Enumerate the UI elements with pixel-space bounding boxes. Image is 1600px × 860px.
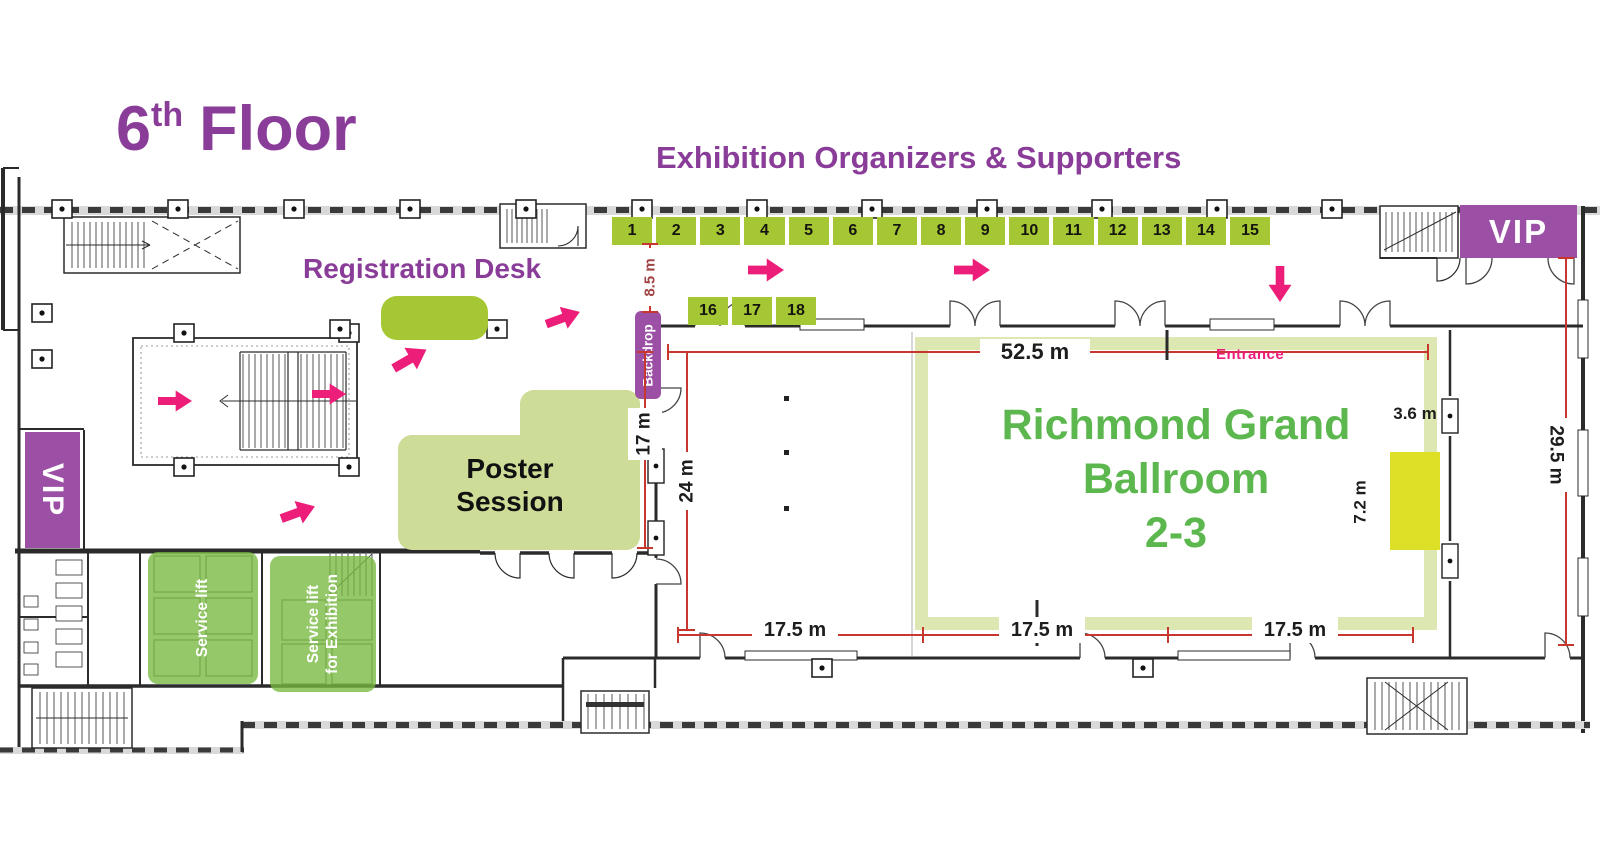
booth-8: 8 <box>921 217 961 245</box>
booth-row-top: 1 2 3 4 5 6 7 8 9 10 11 12 13 14 15 <box>612 217 1270 245</box>
stairs-bottom-right <box>1367 678 1467 734</box>
flow-arrow-up-right-icon <box>542 301 584 336</box>
floor-word: Floor <box>199 94 356 164</box>
dim-ballroom-length: 52.5 m <box>980 339 1090 365</box>
vip-right-doors <box>1466 258 1574 284</box>
dim-bay-2: 17.5 m <box>999 617 1085 643</box>
vip-right-zone: VIP <box>1460 205 1577 258</box>
flow-arrow-right-icon <box>748 258 784 282</box>
booth-16: 16 <box>688 297 728 325</box>
booth-1: 1 <box>612 217 652 245</box>
booth-14: 14 <box>1186 217 1226 245</box>
ballroom-label: Richmond Grand Ballroom 2-3 <box>929 398 1423 560</box>
service-lift-zone: Service lift <box>148 552 258 684</box>
backdrop-zone: Backdrop <box>635 311 661 399</box>
booth-17: 17 <box>732 297 772 325</box>
booth-9: 9 <box>965 217 1005 245</box>
booth-row-inner: 16 17 18 <box>688 297 816 325</box>
vip-left-label: VIP <box>35 463 69 517</box>
booth-3: 3 <box>700 217 740 245</box>
dim-foyer-width: 17 m <box>628 408 662 460</box>
booth-4: 4 <box>744 217 784 245</box>
vip-right-label: VIP <box>1489 213 1548 251</box>
flow-arrow-up-right-icon <box>387 338 433 380</box>
booth-12: 12 <box>1098 217 1138 245</box>
poster-session-label: Poster Session <box>395 452 625 518</box>
service-lift-exhibition-zone: Service lift for Exhibition <box>270 556 376 692</box>
booth-18: 18 <box>776 297 816 325</box>
exhibition-heading: Exhibition Organizers & Supporters <box>656 140 1181 176</box>
flow-arrow-right-icon <box>954 258 990 282</box>
backdrop-label: Backdrop <box>641 324 656 386</box>
stairs-bottom-left <box>32 688 132 748</box>
registration-desk-table <box>381 296 488 340</box>
registration-desk-heading: Registration Desk <box>303 253 541 285</box>
dim-stage-depth: 7.2 m <box>1350 460 1372 544</box>
stairs-top-right <box>1380 206 1460 281</box>
service-lift-exh-line1: Service lift <box>304 574 323 674</box>
vip-left-zone: VIP <box>25 432 80 548</box>
flow-arrow-right-icon <box>158 390 192 412</box>
booth-5: 5 <box>789 217 829 245</box>
service-lift-exh-line2: for Exhibition <box>323 574 342 674</box>
flow-arrow-up-right-icon <box>277 495 319 531</box>
dim-stage-width: 3.6 m <box>1384 404 1446 424</box>
stair-room-top-middle <box>500 204 586 248</box>
dim-bay-3: 17.5 m <box>1252 617 1338 643</box>
booth-10: 10 <box>1009 217 1049 245</box>
floor-ordinal: th <box>151 96 183 134</box>
service-lift-label: Service lift <box>194 579 212 657</box>
page-title: 6thFloor <box>116 96 357 172</box>
stairs-bottom-middle <box>581 691 649 733</box>
booth-2: 2 <box>656 217 696 245</box>
flow-arrow-down-icon <box>1268 266 1292 302</box>
booth-7: 7 <box>877 217 917 245</box>
floor-number: 6 <box>116 94 151 164</box>
flow-arrow-right-icon <box>312 383 346 405</box>
entrance-label: Entrance <box>1216 346 1284 363</box>
floor-plan-canvas: VIP VIP Backdrop Service lift Service li… <box>0 0 1600 860</box>
dim-right-wing-length: 29.5 m <box>1540 418 1572 492</box>
stairs-top-left <box>64 217 240 273</box>
dim-backdrop-span: 8.5 m <box>636 248 664 306</box>
dim-bay-1: 17.5 m <box>752 617 838 643</box>
booth-13: 13 <box>1142 217 1182 245</box>
booth-15: 15 <box>1230 217 1270 245</box>
booth-11: 11 <box>1053 217 1093 245</box>
dim-hall-width: 24 m <box>671 452 705 510</box>
booth-6: 6 <box>833 217 873 245</box>
